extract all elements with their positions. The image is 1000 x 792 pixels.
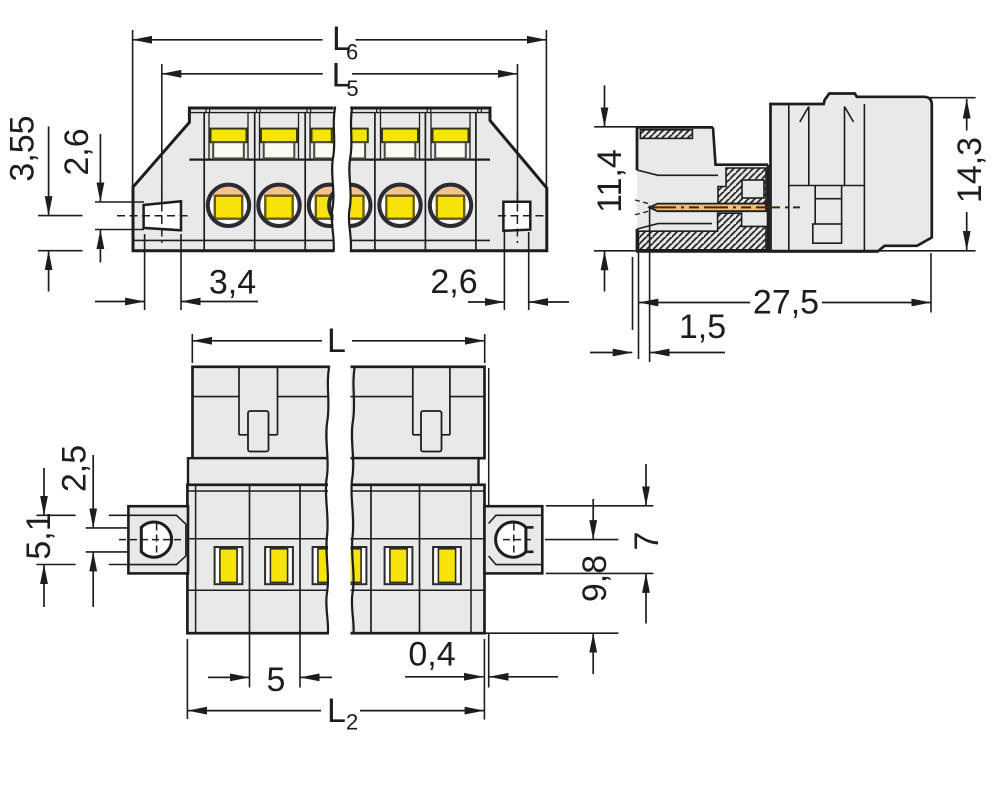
svg-text:1,5: 1,5: [679, 308, 726, 346]
svg-text:2: 2: [346, 710, 358, 735]
svg-text:9,8: 9,8: [576, 555, 614, 602]
svg-text:2,6: 2,6: [430, 263, 477, 301]
svg-text:3,55: 3,55: [4, 115, 42, 181]
svg-text:5: 5: [267, 661, 286, 699]
svg-text:27,5: 27,5: [753, 284, 819, 322]
svg-text:3,4: 3,4: [209, 264, 256, 302]
svg-text:2,6: 2,6: [58, 128, 96, 175]
svg-text:5,1: 5,1: [20, 512, 58, 559]
svg-text:11,4: 11,4: [591, 149, 629, 213]
svg-text:14,3: 14,3: [951, 137, 989, 203]
svg-text:L: L: [327, 692, 346, 730]
svg-text:0,4: 0,4: [408, 636, 455, 674]
svg-text:L: L: [327, 322, 346, 360]
svg-text:5: 5: [346, 76, 358, 101]
svg-text:2,5: 2,5: [56, 445, 94, 492]
svg-text:7: 7: [628, 532, 666, 551]
